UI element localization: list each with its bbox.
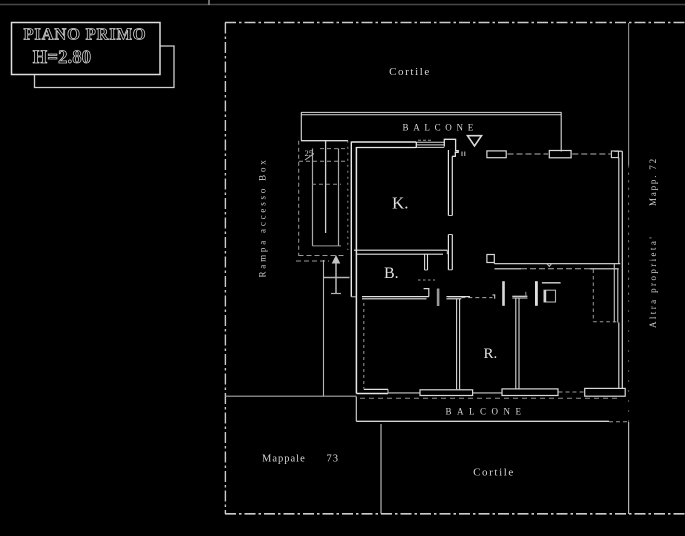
svg-text:Mapp. 72: Mapp. 72 [648, 157, 658, 206]
svg-text:K.: K. [392, 194, 409, 213]
svg-text:R.: R. [484, 346, 498, 362]
svg-text:BALCONE: BALCONE [403, 123, 478, 133]
svg-text:H=2.80: H=2.80 [33, 48, 92, 68]
svg-text:Rampa accesso Box: Rampa accesso Box [258, 157, 268, 277]
svg-text:BALCONE: BALCONE [446, 407, 527, 417]
svg-text:Mappale: Mappale [262, 454, 306, 465]
svg-text:Altra proprieta': Altra proprieta' [648, 235, 658, 328]
svg-text:PIANO PRIMO: PIANO PRIMO [24, 25, 147, 44]
svg-text:Cortile: Cortile [389, 66, 431, 78]
svg-text:25: 25 [305, 148, 314, 158]
svg-text:Cortile: Cortile [473, 467, 515, 479]
svg-text:73: 73 [327, 454, 340, 465]
svg-text:B.: B. [384, 265, 399, 282]
